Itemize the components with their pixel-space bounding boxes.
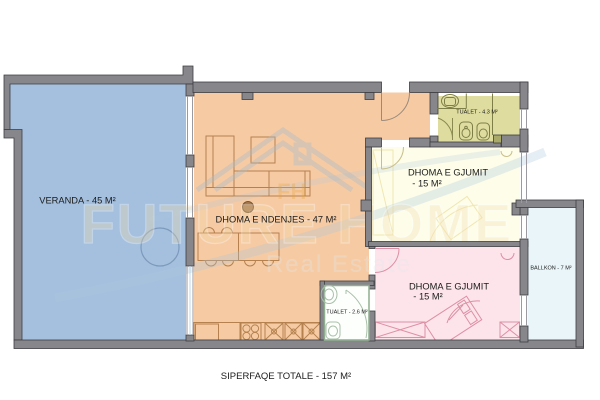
svg-text:- 15 M²: - 15 M² [413,292,442,302]
svg-text:SIPERFAQE TOTALE - 157 M²: SIPERFAQE TOTALE - 157 M² [221,371,351,382]
svg-text:DHOMA E NDENJES - 47 M²: DHOMA E NDENJES - 47 M² [216,215,337,225]
svg-text:TUALET - 2.6 M²: TUALET - 2.6 M² [326,310,368,316]
svg-text:Real Estate: Real Estate [266,251,412,278]
svg-text:- 15 M²: - 15 M² [412,179,441,189]
svg-text:BALLKON - 7 M²: BALLKON - 7 M² [530,266,571,272]
svg-text:DHOMA E GJUMIT: DHOMA E GJUMIT [409,282,489,292]
svg-text:DHOMA E GJUMIT: DHOMA E GJUMIT [408,168,488,178]
svg-text:TUALET - 4.3 M²: TUALET - 4.3 M² [456,110,498,116]
svg-text:VERANDA - 45 M²: VERANDA - 45 M² [39,196,115,206]
